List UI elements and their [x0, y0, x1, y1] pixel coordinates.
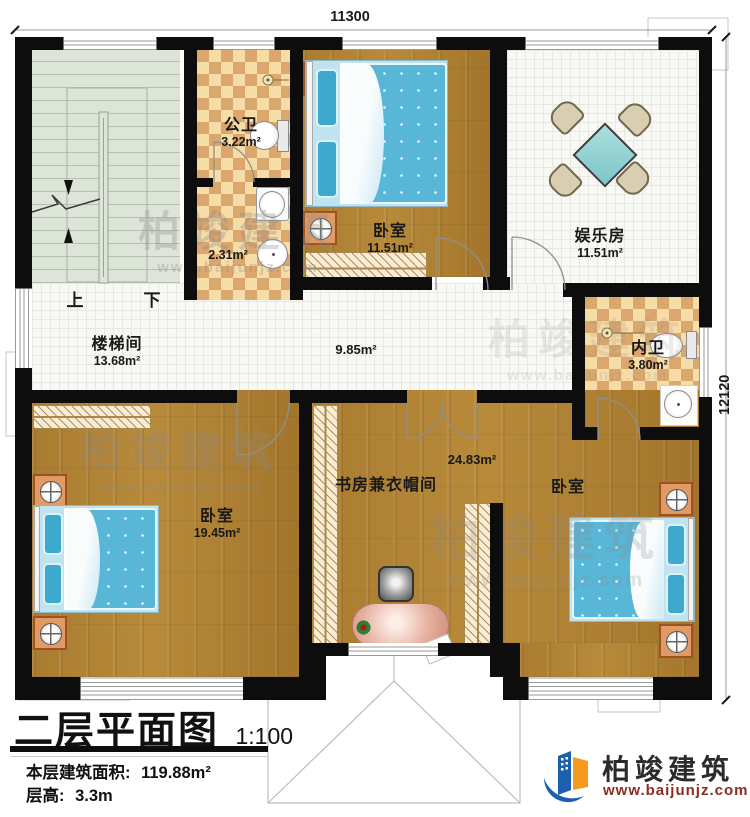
floor-area-line: 本层建筑面积: 119.88m²	[26, 759, 211, 783]
floor-height-value: 3.3m	[75, 787, 113, 805]
stair-details	[32, 88, 147, 283]
door-bedroom-bl	[237, 403, 289, 455]
room-label-study: 书房兼衣帽间	[288, 477, 484, 495]
room-label-ensuite-bath: 内卫 3.80m²	[614, 340, 682, 372]
label-down: 下	[139, 291, 165, 310]
room-area: 2.31m²	[192, 248, 264, 262]
room-area: 3.22m²	[203, 135, 279, 149]
floor-area-value: 119.88m²	[141, 764, 211, 782]
room-name: 内卫	[614, 340, 682, 358]
title-underline	[10, 746, 268, 752]
room-label-corridor: 9.85m²	[320, 343, 392, 358]
floor-height-label: 层高:	[26, 787, 65, 805]
dimension-right: 12120	[717, 360, 735, 430]
room-area: 9.85m²	[320, 343, 392, 358]
label-up: 上	[62, 291, 88, 310]
floor-area-label: 本层建筑面积:	[26, 764, 131, 782]
brand-logo-icon	[538, 742, 598, 804]
room-name: 公卫	[203, 117, 279, 135]
brand-logo: 柏竣建筑 www.baijunjz.com	[538, 740, 748, 806]
doors	[214, 142, 640, 455]
room-label-bedroom-br: 卧室	[535, 479, 601, 497]
stair-arrow-up-icon	[64, 228, 73, 243]
title-hairline	[10, 756, 268, 757]
room-area: 24.83m²	[436, 453, 508, 468]
room-name: 楼梯间	[74, 336, 160, 354]
stair-break-line	[32, 195, 100, 212]
room-area-study: 24.83m²	[436, 453, 508, 468]
room-name: 卧室	[177, 508, 257, 526]
room-name: 卧室	[350, 223, 430, 241]
room-label-wash-niche: 2.31m²	[192, 248, 264, 262]
room-label-bedroom-bl: 卧室 19.45m²	[177, 508, 257, 540]
room-label-stairwell: 楼梯间 13.68m²	[74, 336, 160, 368]
room-name: 娱乐房	[556, 228, 644, 246]
dimension-top: 11300	[310, 9, 390, 25]
room-area: 11.51m²	[556, 246, 644, 260]
room-label-bedroom-top: 卧室 11.51m²	[350, 223, 430, 255]
stair-arrow-down-icon	[64, 180, 73, 195]
room-area: 13.68m²	[74, 354, 160, 368]
room-label-entertainment: 娱乐房 11.51m²	[556, 228, 644, 260]
double-door-study	[407, 403, 477, 438]
linework-layer	[0, 0, 750, 817]
floor-height-line: 层高: 3.3m	[26, 782, 113, 806]
room-area: 11.51m²	[350, 241, 430, 255]
room-name: 书房兼衣帽间	[288, 477, 484, 495]
stair-down-label: 下	[139, 291, 165, 310]
brand-url: www.baijunjz.com	[603, 782, 748, 799]
pendant-lights	[263, 75, 644, 338]
floor-plan-page: 柏竣建筑 www.baijunjz.com 柏竣建筑 www.baijunjz.…	[0, 0, 750, 817]
stair-up-label: 上	[62, 291, 88, 310]
door-ensuite-bath	[598, 398, 640, 440]
room-label-public-bath: 公卫 3.22m²	[203, 117, 279, 149]
door-bedroom-top	[436, 238, 488, 290]
room-name: 卧室	[535, 479, 601, 497]
room-area: 3.80m²	[614, 358, 682, 372]
room-area: 19.45m²	[177, 526, 257, 540]
